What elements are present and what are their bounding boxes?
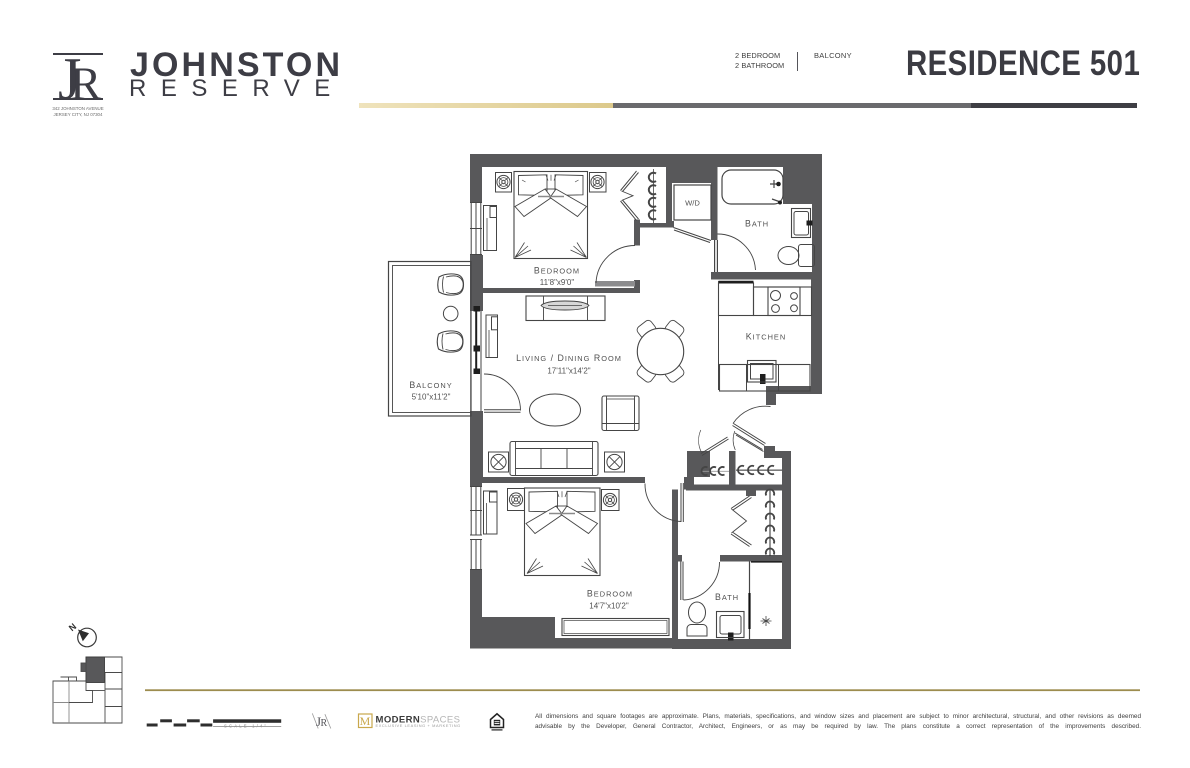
svg-text:BATH: BATH: [745, 219, 769, 229]
svg-text:BEDROOM: BEDROOM: [534, 266, 580, 276]
svg-text:BEDROOM: BEDROOM: [587, 589, 633, 599]
svg-text:LIVING / DINING ROOM: LIVING / DINING ROOM: [516, 353, 622, 363]
svg-text:BATH: BATH: [715, 592, 739, 602]
svg-text:5'10"x11'2": 5'10"x11'2": [412, 393, 451, 402]
svg-text:SCALE 1/4": SCALE 1/4": [224, 724, 268, 729]
svg-text:11'8"x9'0": 11'8"x9'0": [540, 278, 575, 287]
svg-text:R: R: [321, 718, 328, 729]
svg-text:14'7"x10'2": 14'7"x10'2": [589, 602, 629, 611]
svg-text:BALCONY: BALCONY: [409, 380, 452, 390]
svg-text:N: N: [67, 621, 78, 633]
svg-text:W/D: W/D: [685, 199, 700, 208]
svg-text:17'11"x14'2": 17'11"x14'2": [547, 367, 590, 376]
svg-text:KITCHEN: KITCHEN: [746, 332, 786, 342]
svg-text:EXCLUSIVE LEASING + MARKETING: EXCLUSIVE LEASING + MARKETING: [376, 723, 461, 728]
svg-text:M: M: [360, 714, 371, 728]
